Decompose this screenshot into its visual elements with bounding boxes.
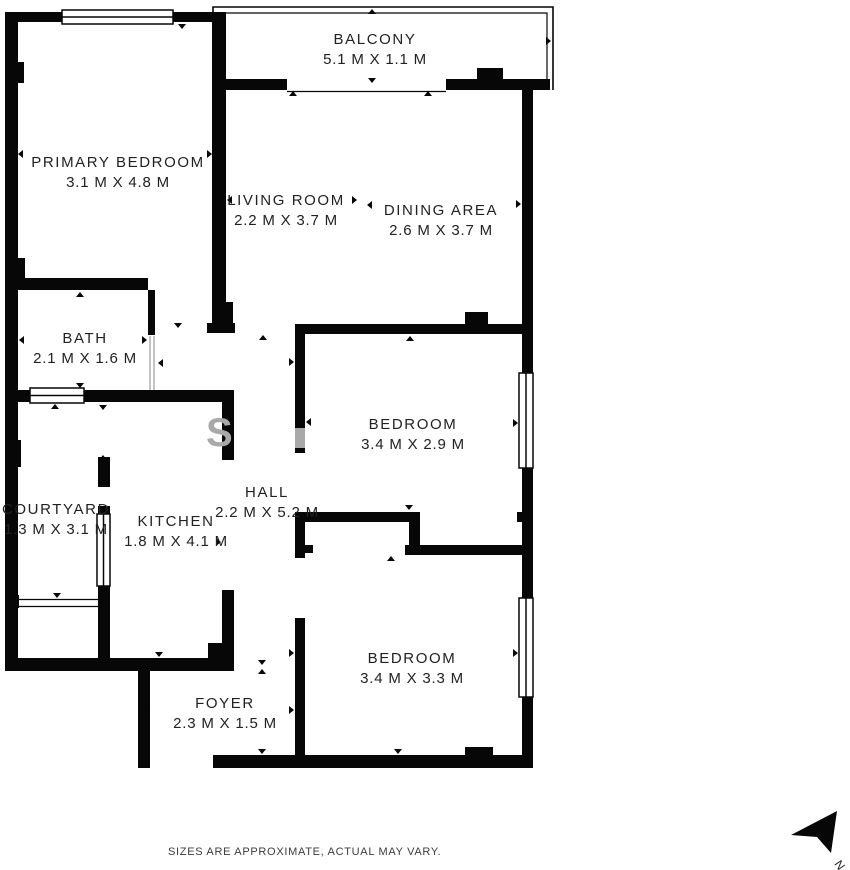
compass-north-label: N bbox=[831, 858, 847, 870]
walls bbox=[5, 12, 550, 768]
window-bedroom-2 bbox=[519, 598, 533, 697]
disclaimer-text: SIZES ARE APPROXIMATE, ACTUAL MAY VARY. bbox=[168, 846, 441, 858]
room-name: LIVING ROOM bbox=[227, 191, 345, 211]
window-bath bbox=[30, 388, 84, 403]
room-dimensions: 3.4 M X 3.3 M bbox=[360, 669, 464, 689]
floorplan-page: N S BALCONY 5.1 M X 1.1 M PRIMARY BEDROO… bbox=[0, 0, 850, 870]
room-dimensions: 2.6 M X 3.7 M bbox=[384, 221, 498, 241]
room-name: BALCONY bbox=[323, 30, 427, 50]
room-dimensions: 1.3 M X 3.1 M bbox=[2, 520, 110, 540]
room-name: BATH bbox=[33, 329, 137, 349]
room-name: KITCHEN bbox=[124, 512, 228, 532]
room-dimensions: 1.8 M X 4.1 M bbox=[124, 532, 228, 552]
room-name: FOYER bbox=[173, 694, 277, 714]
room-dimensions: 2.3 M X 1.5 M bbox=[173, 714, 277, 734]
room-dimensions: 3.1 M X 4.8 M bbox=[31, 173, 204, 193]
room-label-living-room: LIVING ROOM 2.2 M X 3.7 M bbox=[227, 191, 345, 231]
dimension-ticks bbox=[18, 9, 551, 754]
room-name: DINING AREA bbox=[384, 201, 498, 221]
room-label-bath: BATH 2.1 M X 1.6 M bbox=[33, 329, 137, 369]
room-name: COURTYARD bbox=[2, 500, 110, 520]
north-arrow-icon: N bbox=[791, 811, 848, 870]
room-name: PRIMARY BEDROOM bbox=[31, 153, 204, 173]
room-name: BEDROOM bbox=[361, 415, 465, 435]
room-label-hall: HALL 2.2 M X 5.2 M bbox=[215, 483, 319, 523]
watermark-wall-patch bbox=[295, 428, 305, 448]
room-dimensions: 5.1 M X 1.1 M bbox=[323, 50, 427, 70]
room-label-kitchen: KITCHEN 1.8 M X 4.1 M bbox=[124, 512, 228, 552]
room-label-foyer: FOYER 2.3 M X 1.5 M bbox=[173, 694, 277, 734]
room-name: BEDROOM bbox=[360, 649, 464, 669]
window-bedroom-1 bbox=[519, 373, 533, 468]
room-dimensions: 2.1 M X 1.6 M bbox=[33, 349, 137, 369]
window-primary-bedroom bbox=[62, 10, 173, 24]
room-label-bedroom-1: BEDROOM 3.4 M X 2.9 M bbox=[361, 415, 465, 455]
room-dimensions: 2.2 M X 3.7 M bbox=[227, 211, 345, 231]
room-dimensions: 3.4 M X 2.9 M bbox=[361, 435, 465, 455]
room-label-balcony: BALCONY 5.1 M X 1.1 M bbox=[323, 30, 427, 70]
room-label-primary-bedroom: PRIMARY BEDROOM 3.1 M X 4.8 M bbox=[31, 153, 204, 193]
room-dimensions: 2.2 M X 5.2 M bbox=[215, 503, 319, 523]
watermark-glyph: S bbox=[206, 411, 233, 456]
room-label-bedroom-2: BEDROOM 3.4 M X 3.3 M bbox=[360, 649, 464, 689]
room-label-courtyard: COURTYARD 1.3 M X 3.1 M bbox=[2, 500, 110, 540]
room-label-dining-area: DINING AREA 2.6 M X 3.7 M bbox=[384, 201, 498, 241]
room-name: HALL bbox=[215, 483, 319, 503]
